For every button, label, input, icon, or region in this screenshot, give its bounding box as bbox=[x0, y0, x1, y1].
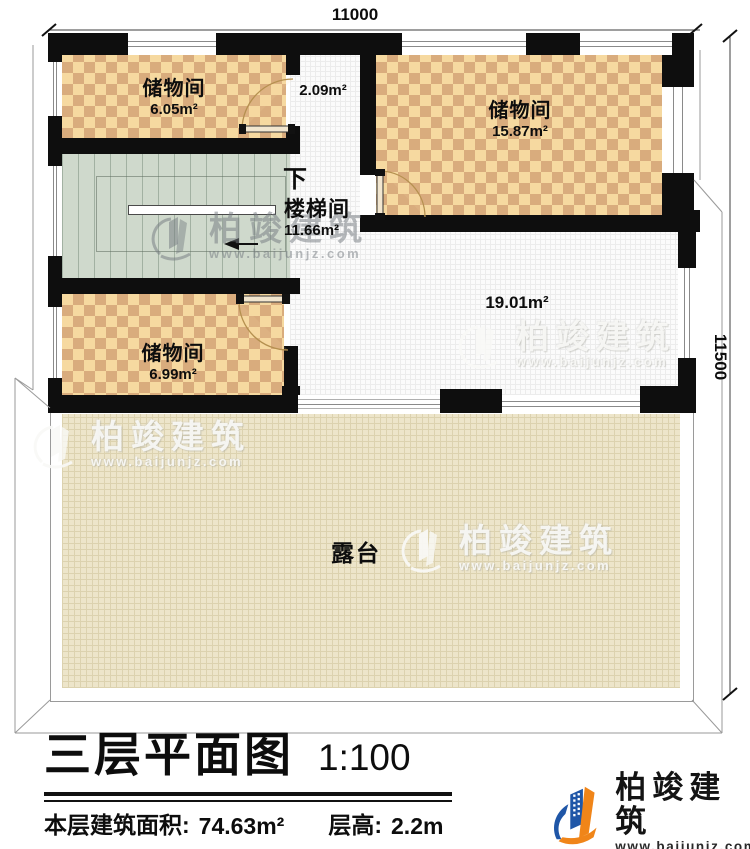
window-left-2 bbox=[48, 166, 62, 256]
window-right-upper bbox=[662, 87, 694, 173]
dimension-right: 11500 bbox=[710, 312, 730, 402]
watermark-logo-icon bbox=[30, 418, 82, 470]
watermark-logo-icon bbox=[148, 210, 200, 262]
watermark-terrace-left: 柏竣建筑 www.baijunjz.com bbox=[30, 418, 251, 470]
watermark-logo-icon bbox=[455, 318, 507, 370]
room-area: 19.01m² bbox=[457, 293, 577, 313]
floor-area-label: 本层建筑面积: bbox=[44, 806, 190, 840]
watermark-brand-text: 柏竣建筑 bbox=[516, 320, 676, 355]
plan-scale: 1:100 bbox=[318, 739, 411, 778]
label-stair-down: 下 bbox=[283, 166, 317, 194]
watermark-terrace-right: 柏竣建筑 www.baijunjz.com bbox=[398, 522, 619, 574]
wall-top-3 bbox=[526, 33, 580, 55]
wall-bottom-1 bbox=[48, 395, 298, 413]
title-underline-thin bbox=[44, 800, 452, 802]
room-area: 2.09m² bbox=[293, 82, 353, 99]
watermark-site-text: www.baijunjz.com bbox=[459, 559, 619, 573]
wall-bottom-3 bbox=[640, 386, 696, 413]
room-area: 6.05m² bbox=[94, 101, 254, 118]
title-block: 三层平面图 1:100 bbox=[44, 731, 411, 778]
title-underline-thick bbox=[44, 792, 452, 796]
brand-site: www.baijunjz.com bbox=[615, 839, 750, 849]
label-storage-a: 储物间 6.05m² bbox=[94, 78, 254, 118]
watermark-site-text: www.baijunjz.com bbox=[209, 247, 369, 261]
floor-info-row: 本层建筑面积: 74.63m² 层高: 2.2m bbox=[44, 806, 443, 840]
label-terrace: 露台 bbox=[316, 540, 396, 566]
window-top-2 bbox=[402, 33, 526, 55]
room-name: 露台 bbox=[331, 540, 381, 566]
brand-block: 柏竣建筑 www.baijunjz.com bbox=[545, 771, 750, 849]
room-name: 楼梯间 bbox=[284, 198, 374, 222]
window-top-1 bbox=[128, 33, 216, 55]
watermark-site-text: www.baijunjz.com bbox=[516, 355, 676, 369]
floor-height-value: 2.2m bbox=[391, 813, 443, 840]
sliding-door-terrace bbox=[298, 395, 440, 413]
label-stairwell: 楼梯间 11.66m² bbox=[284, 198, 374, 239]
window-right-lower bbox=[678, 268, 696, 358]
floor-area-value: 74.63m² bbox=[199, 813, 285, 840]
watermark-brand-text: 柏竣建筑 bbox=[91, 420, 251, 455]
room-area: 6.99m² bbox=[93, 366, 253, 383]
window-top-3 bbox=[580, 33, 672, 55]
brand-logo-icon bbox=[545, 780, 605, 846]
watermark-hall: 柏竣建筑 www.baijunjz.com bbox=[455, 318, 676, 370]
label-storage-b: 储物间 15.87m² bbox=[440, 100, 600, 140]
wall-storage-b-left bbox=[360, 33, 376, 175]
door-storage-b bbox=[374, 168, 428, 222]
window-left-3 bbox=[48, 307, 62, 378]
stair-direction: 下 bbox=[283, 166, 307, 193]
wall-bottom-2 bbox=[440, 389, 502, 413]
window-bottom bbox=[502, 395, 640, 413]
floor-height-label: 层高: bbox=[328, 806, 382, 840]
wall-stair-bottom bbox=[48, 278, 300, 294]
room-name: 储物间 bbox=[440, 100, 600, 123]
window-left-1 bbox=[48, 62, 62, 116]
label-hall-small: 2.09m² bbox=[293, 82, 353, 99]
watermark-logo-icon bbox=[398, 522, 450, 574]
floor-plan-page: 柏竣建筑 www.baijunjz.com 柏竣建筑 www.baijunjz.… bbox=[0, 0, 750, 849]
room-area: 15.87m² bbox=[440, 123, 600, 140]
room-name: 储物间 bbox=[93, 343, 253, 366]
wall-under-storage-a bbox=[48, 138, 300, 154]
label-hall: 19.01m² bbox=[457, 293, 577, 313]
room-name: 储物间 bbox=[94, 78, 254, 101]
watermark-brand-text: 柏竣建筑 bbox=[459, 524, 619, 559]
dimension-top: 11000 bbox=[300, 5, 410, 25]
wall-storage-c-right bbox=[284, 346, 298, 395]
label-storage-c: 储物间 6.99m² bbox=[93, 343, 253, 383]
wall-right-step bbox=[662, 210, 700, 232]
watermark-site-text: www.baijunjz.com bbox=[91, 455, 251, 469]
brand-name: 柏竣建筑 bbox=[615, 771, 750, 839]
plan-title: 三层平面图 bbox=[44, 731, 294, 778]
room-area: 11.66m² bbox=[284, 222, 374, 239]
